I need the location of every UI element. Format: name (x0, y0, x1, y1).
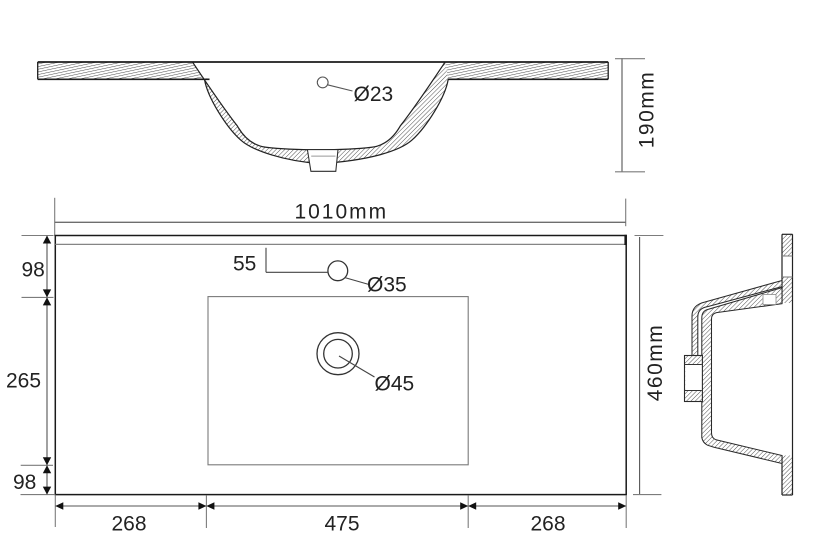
svg-text:Ø45: Ø45 (375, 373, 415, 396)
svg-text:460mm: 460mm (644, 324, 667, 402)
svg-text:268: 268 (112, 512, 147, 535)
svg-text:98: 98 (13, 471, 36, 494)
svg-text:Ø35: Ø35 (367, 273, 407, 296)
svg-text:1010mm: 1010mm (294, 201, 388, 224)
svg-text:98: 98 (22, 259, 45, 282)
svg-text:268: 268 (531, 512, 566, 535)
svg-text:55: 55 (233, 253, 256, 276)
svg-text:190mm: 190mm (635, 71, 658, 149)
svg-text:265: 265 (6, 370, 41, 393)
svg-text:Ø23: Ø23 (354, 83, 394, 106)
svg-text:475: 475 (325, 512, 360, 535)
